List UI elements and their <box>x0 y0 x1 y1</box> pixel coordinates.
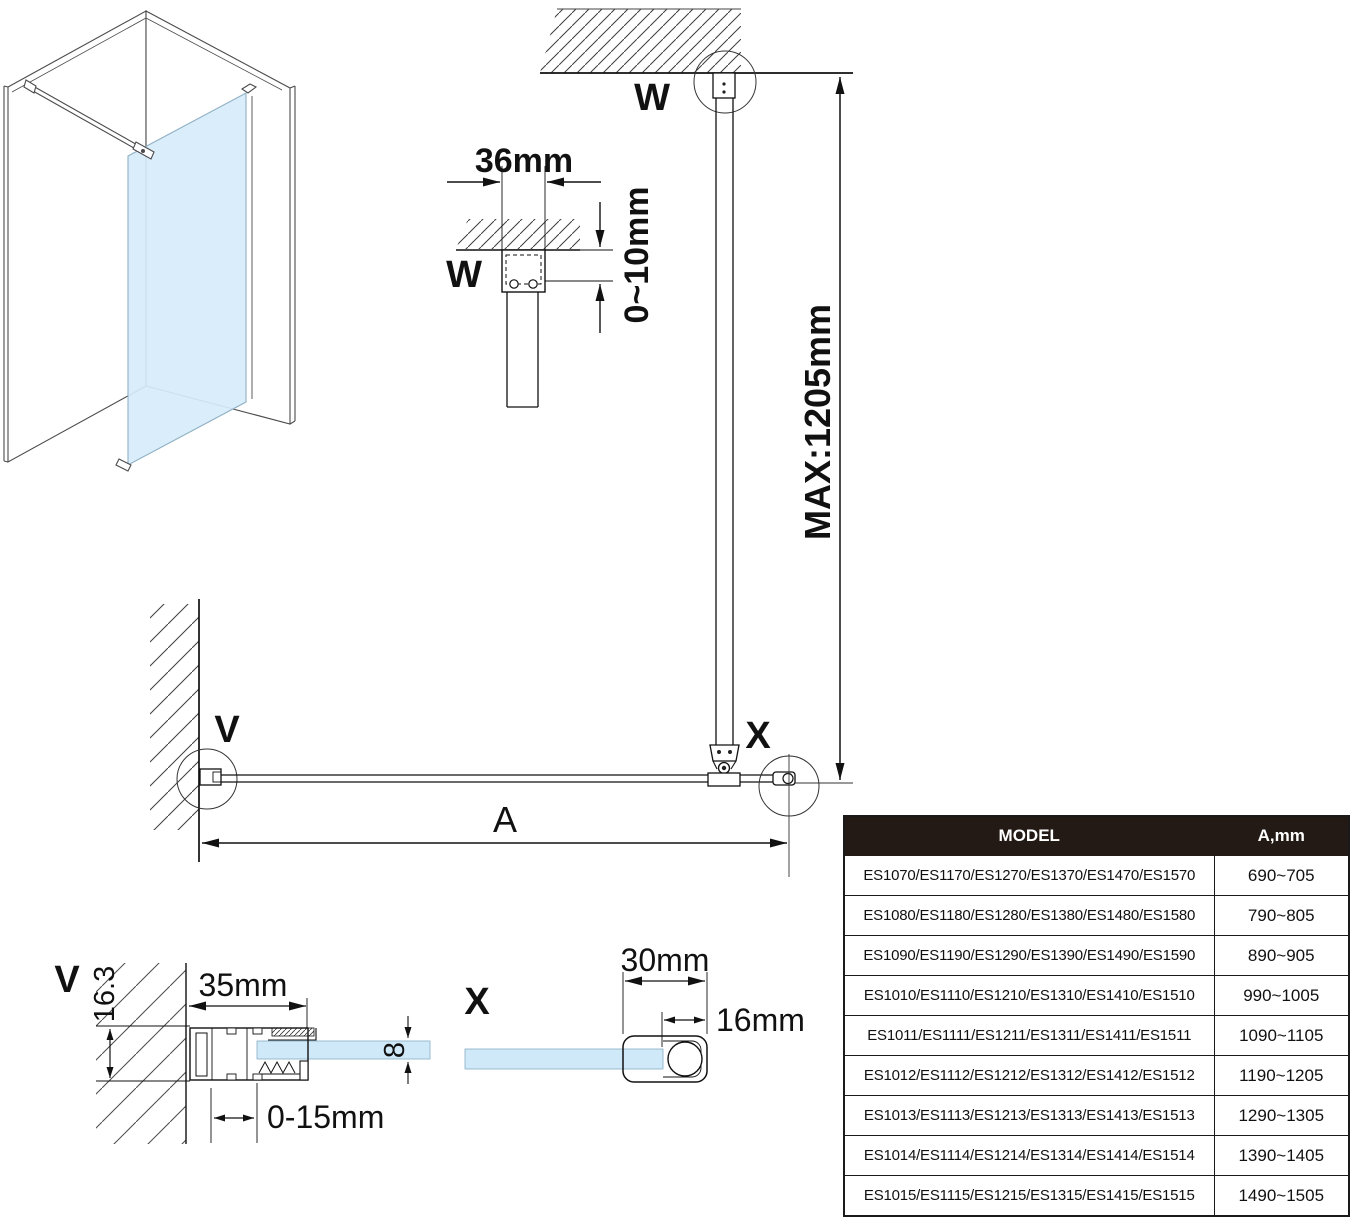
glass-section-x <box>465 1049 663 1069</box>
v-section-detail: V 16.3 35mm 0-15mm 8 <box>54 959 430 1144</box>
isometric-view <box>4 11 295 471</box>
table-row: ES1011/ES1111/ES1211/ES1311/ES1411/ES151… <box>844 1016 1349 1056</box>
a-range-cell: 1390~1405 <box>1214 1136 1349 1176</box>
table-row: ES1015/ES1115/ES1215/ES1315/ES1415/ES151… <box>844 1176 1349 1217</box>
label-elevation-x: X <box>745 715 771 757</box>
ceiling-bracket-detail: 36mm W 0~10mm <box>446 142 656 407</box>
model-cell: ES1080/ES1180/ES1280/ES1380/ES1480/ES158… <box>844 896 1214 936</box>
table-row: ES1014/ES1114/ES1214/ES1314/ES1414/ES151… <box>844 1136 1349 1176</box>
model-cell: ES1013/ES1113/ES1213/ES1313/ES1413/ES151… <box>844 1096 1214 1136</box>
table-row: ES1070/ES1170/ES1270/ES1370/ES1470/ES157… <box>844 856 1349 896</box>
table-row: ES1080/ES1180/ES1280/ES1380/ES1480/ES158… <box>844 896 1349 936</box>
label-x-detail: X <box>464 981 490 1023</box>
model-cell: ES1090/ES1190/ES1290/ES1390/ES1490/ES159… <box>844 936 1214 976</box>
header-model: MODEL <box>844 816 1214 856</box>
x-section-detail: X 30mm 16mm <box>464 942 805 1082</box>
a-range-cell: 690~705 <box>1214 856 1349 896</box>
dim-bracket-width: 36mm <box>475 142 573 180</box>
label-elevation-v: V <box>214 709 240 751</box>
model-size-table: MODEL A,mm ES1070/ES1170/ES1270/ES1370/E… <box>843 815 1350 1217</box>
dim-profile-height: 16.3 <box>89 966 121 1022</box>
table-header: MODEL A,mm <box>844 816 1349 856</box>
dim-bar-width: 16mm <box>716 1002 805 1038</box>
label-elevation-w: W <box>634 77 670 119</box>
model-cell: ES1011/ES1111/ES1211/ES1311/ES1411/ES151… <box>844 1016 1214 1056</box>
table-row: ES1010/ES1110/ES1210/ES1310/ES1410/ES151… <box>844 976 1349 1016</box>
table-row: ES1013/ES1113/ES1213/ES1313/ES1413/ES151… <box>844 1096 1349 1136</box>
dim-profile-width: 35mm <box>199 967 288 1003</box>
a-range-cell: 1190~1205 <box>1214 1056 1349 1096</box>
bar-glass-connector <box>708 745 740 786</box>
dim-endprofile-width: 30mm <box>621 942 710 978</box>
table-row: ES1012/ES1112/ES1212/ES1312/ES1412/ES151… <box>844 1056 1349 1096</box>
label-v-detail: V <box>54 959 80 1001</box>
a-range-cell: 890~905 <box>1214 936 1349 976</box>
a-range-cell: 790~805 <box>1214 896 1349 936</box>
a-range-cell: 1490~1505 <box>1214 1176 1349 1217</box>
round-bar-section <box>668 1042 702 1076</box>
table-body: ES1070/ES1170/ES1270/ES1370/ES1470/ES157… <box>844 856 1349 1217</box>
model-cell: ES1015/ES1115/ES1215/ES1315/ES1415/ES151… <box>844 1176 1214 1217</box>
table-row: ES1090/ES1190/ES1290/ES1390/ES1490/ES159… <box>844 936 1349 976</box>
model-cell: ES1014/ES1114/ES1214/ES1314/ES1414/ES151… <box>844 1136 1214 1176</box>
a-range-cell: 1290~1305 <box>1214 1096 1349 1136</box>
label-bracket-w: W <box>446 254 482 296</box>
dim-width-a: A <box>493 799 517 840</box>
installation-diagram-page: { "figure": { "top_detail": { "width_lab… <box>0 0 1352 1209</box>
header-a-mm: A,mm <box>1214 816 1349 856</box>
model-cell: ES1012/ES1112/ES1212/ES1312/ES1412/ES151… <box>844 1056 1214 1096</box>
dim-max-height: MAX:1205mm <box>797 304 838 540</box>
model-cell: ES1010/ES1110/ES1210/ES1310/ES1410/ES151… <box>844 976 1214 1016</box>
dim-insert-range: 0-15mm <box>267 1099 384 1135</box>
model-cell: ES1070/ES1170/ES1270/ES1370/ES1470/ES157… <box>844 856 1214 896</box>
dim-ceiling-offset: 0~10mm <box>618 186 656 323</box>
a-range-cell: 990~1005 <box>1214 976 1349 1016</box>
a-range-cell: 1090~1105 <box>1214 1016 1349 1056</box>
dim-glass-thickness: 8 <box>379 1042 411 1058</box>
